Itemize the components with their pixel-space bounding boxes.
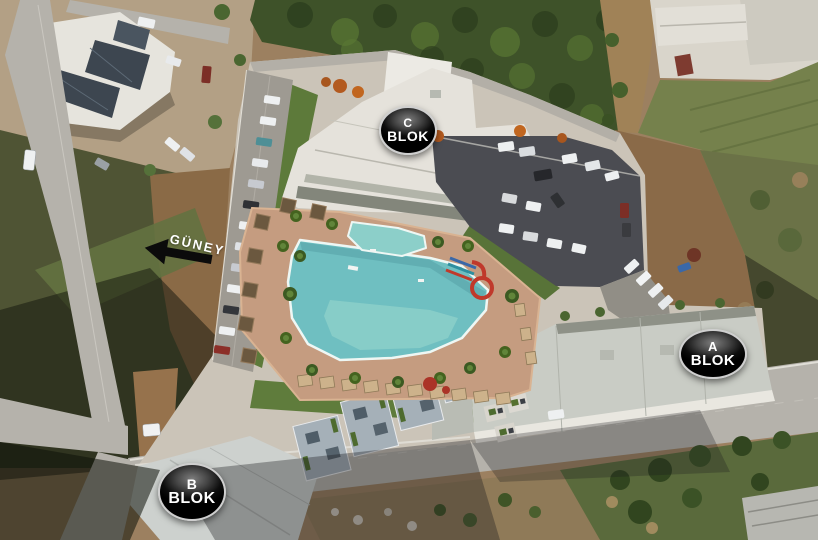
aerial-site-photo: C BLOK A BLOK B BLOK GÜNEY [0,0,818,540]
orange-tree [514,125,526,137]
orange-tree [352,86,364,98]
block-b-word: BLOK [168,491,215,507]
block-b-letter: B [187,477,198,491]
aerial-scene [0,0,818,540]
red-flowering-tree [442,386,450,394]
orange-tree [333,79,347,93]
block-a-word: BLOK [691,353,736,368]
orange-tree [321,77,331,87]
red-flowering-tree [423,377,437,391]
red-roof [674,54,693,76]
block-c-label-badge: C BLOK [379,106,437,155]
block-c-word: BLOK [387,129,429,143]
block-a-label-badge: A BLOK [679,329,747,379]
orange-tree [557,133,567,143]
block-a-letter: A [708,340,718,353]
block-b-label-badge: B BLOK [158,463,226,521]
